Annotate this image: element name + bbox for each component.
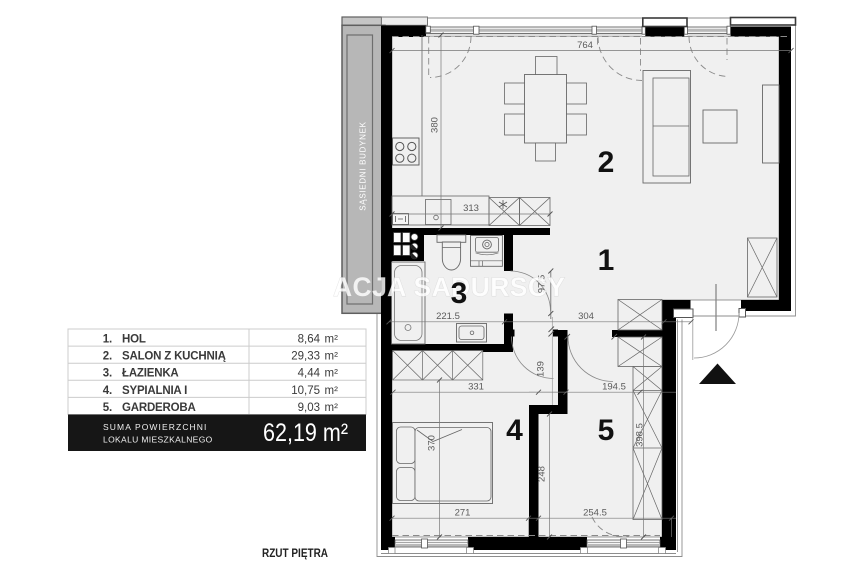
- svg-text:1.: 1.: [103, 334, 112, 346]
- svg-text:221.5: 221.5: [436, 311, 460, 322]
- svg-text:SUMA POWIERZCHNI: SUMA POWIERZCHNI: [103, 422, 208, 432]
- svg-text:GARDEROBA: GARDEROBA: [122, 402, 196, 414]
- svg-text:ACJA SADURSCY: ACJA SADURSCY: [333, 272, 565, 302]
- svg-text:139: 139: [536, 361, 547, 377]
- svg-text:LOKALU MIESZKALNEGO: LOKALU MIESZKALNEGO: [103, 435, 213, 445]
- svg-text:m²: m²: [325, 351, 339, 363]
- svg-text:380: 380: [430, 117, 441, 133]
- svg-text:398.5: 398.5: [635, 423, 646, 447]
- svg-text:SALON Z KUCHNIĄ: SALON Z KUCHNIĄ: [122, 351, 226, 363]
- svg-text:2.: 2.: [103, 351, 112, 363]
- svg-text:254.5: 254.5: [583, 508, 607, 519]
- svg-text:m²: m²: [325, 385, 339, 397]
- svg-text:4,44: 4,44: [298, 368, 321, 380]
- svg-text:m²: m²: [325, 368, 339, 380]
- svg-text:RZUT PIĘTRA: RZUT PIĘTRA: [262, 546, 328, 560]
- svg-text:1: 1: [598, 244, 615, 277]
- svg-text:8,64: 8,64: [298, 334, 321, 346]
- svg-text:304: 304: [578, 311, 594, 322]
- svg-text:SYPIALNIA I: SYPIALNIA I: [122, 385, 187, 397]
- svg-text:271: 271: [455, 508, 471, 519]
- svg-text:5: 5: [598, 414, 615, 447]
- svg-text:2: 2: [598, 146, 615, 179]
- svg-text:4: 4: [506, 414, 523, 447]
- svg-text:m²: m²: [325, 402, 339, 414]
- svg-text:SĄSIEDNI BUDYNEK: SĄSIEDNI BUDYNEK: [359, 121, 368, 210]
- svg-text:9,03: 9,03: [298, 402, 320, 414]
- svg-text:10,75: 10,75: [291, 385, 320, 397]
- svg-text:29,33: 29,33: [291, 351, 320, 363]
- svg-text:ŁAZIENKA: ŁAZIENKA: [122, 368, 179, 380]
- svg-text:HOL: HOL: [122, 334, 146, 346]
- svg-text:331: 331: [468, 382, 484, 393]
- svg-text:4.: 4.: [103, 385, 112, 397]
- svg-text:248: 248: [537, 466, 548, 482]
- svg-text:764: 764: [577, 40, 593, 51]
- svg-text:194.5: 194.5: [602, 382, 626, 393]
- svg-text:62,19 m²: 62,19 m²: [263, 419, 348, 447]
- svg-text:370: 370: [427, 435, 438, 451]
- svg-text:m²: m²: [325, 334, 339, 346]
- svg-text:5.: 5.: [103, 402, 112, 414]
- svg-text:313: 313: [463, 203, 479, 214]
- svg-text:3.: 3.: [103, 368, 112, 380]
- svg-text:3: 3: [451, 277, 468, 310]
